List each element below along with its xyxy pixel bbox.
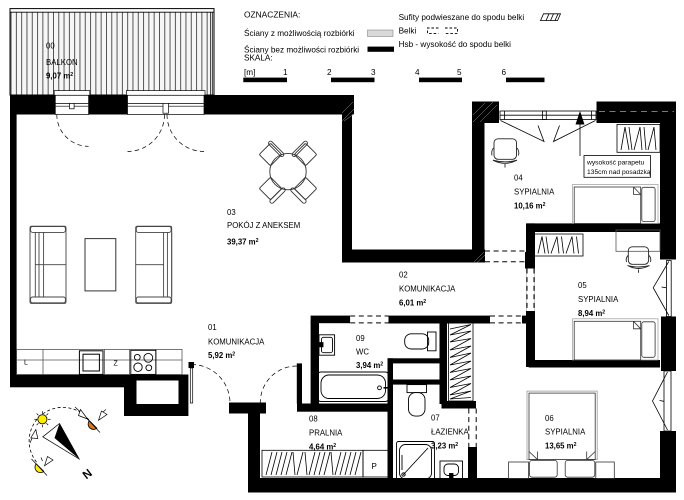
svg-text:135cm nad posadzką: 135cm nad posadzką [587,169,651,176]
svg-text:1: 1 [283,68,288,77]
svg-text:05: 05 [578,281,587,290]
svg-text:SYPIALNIA: SYPIALNIA [578,295,619,304]
svg-text:04: 04 [514,174,523,183]
svg-text:ŁAZIENKA: ŁAZIENKA [431,428,469,437]
svg-text:SYPIALNIA: SYPIALNIA [545,428,586,437]
svg-text:5,92 m2: 5,92 m2 [208,351,235,360]
svg-text:L: L [24,360,28,367]
svg-text:07: 07 [431,414,440,423]
svg-text:13,65 m2: 13,65 m2 [545,442,577,451]
svg-text:Ściany bez możliwości rozbiórk: Ściany bez możliwości rozbiórki [244,43,359,54]
svg-text:5: 5 [457,68,462,77]
svg-text:8,94 m2: 8,94 m2 [578,309,605,318]
svg-text:SYPIALNIA: SYPIALNIA [514,188,555,197]
svg-text:KOMUNIKACJA: KOMUNIKACJA [399,285,456,294]
svg-text:BALKON: BALKON [46,58,78,67]
svg-text:wysokość parapetu: wysokość parapetu [586,159,645,166]
svg-text:[m]: [m] [244,68,255,77]
svg-text:2: 2 [327,68,332,77]
svg-text:39,37 m2: 39,37 m2 [227,238,259,247]
svg-text:10,16 m2: 10,16 m2 [514,202,546,211]
svg-text:Sufity podwieszane do spodu be: Sufity podwieszane do spodu belki [399,13,525,22]
svg-text:3,23 m2: 3,23 m2 [431,442,458,451]
svg-text:KOMUNIKACJA: KOMUNIKACJA [208,338,265,347]
svg-text:P: P [372,462,377,471]
svg-text:POKÓJ Z ANEKSEM: POKÓJ Z ANEKSEM [227,221,300,230]
svg-text:Ściany z możliwością rozbiórki: Ściany z możliwością rozbiórki [244,27,355,38]
svg-text:SKALA:: SKALA: [244,54,273,63]
svg-text:4: 4 [415,68,420,77]
svg-text:Hsb - wysokość do spodu belki: Hsb - wysokość do spodu belki [399,40,512,49]
svg-text:09: 09 [356,334,365,343]
svg-text:3: 3 [371,68,376,77]
svg-text:PRALNIA: PRALNIA [309,429,343,438]
svg-text:02: 02 [399,271,408,280]
svg-text:Belki: Belki [399,27,417,36]
svg-text:Z: Z [114,361,119,368]
svg-text:6: 6 [502,68,507,77]
svg-text:OZNACZENIA:: OZNACZENIA: [244,10,300,20]
svg-text:00: 00 [46,42,55,51]
svg-text:6,01 m2: 6,01 m2 [399,299,426,308]
svg-text:06: 06 [545,414,554,423]
svg-text:3,94 m2: 3,94 m2 [356,361,383,370]
svg-text:08: 08 [309,415,318,424]
svg-text:9,07 m2: 9,07 m2 [46,72,73,81]
svg-text:01: 01 [208,323,217,332]
svg-text:WC: WC [356,348,369,357]
svg-text:03: 03 [227,208,236,217]
